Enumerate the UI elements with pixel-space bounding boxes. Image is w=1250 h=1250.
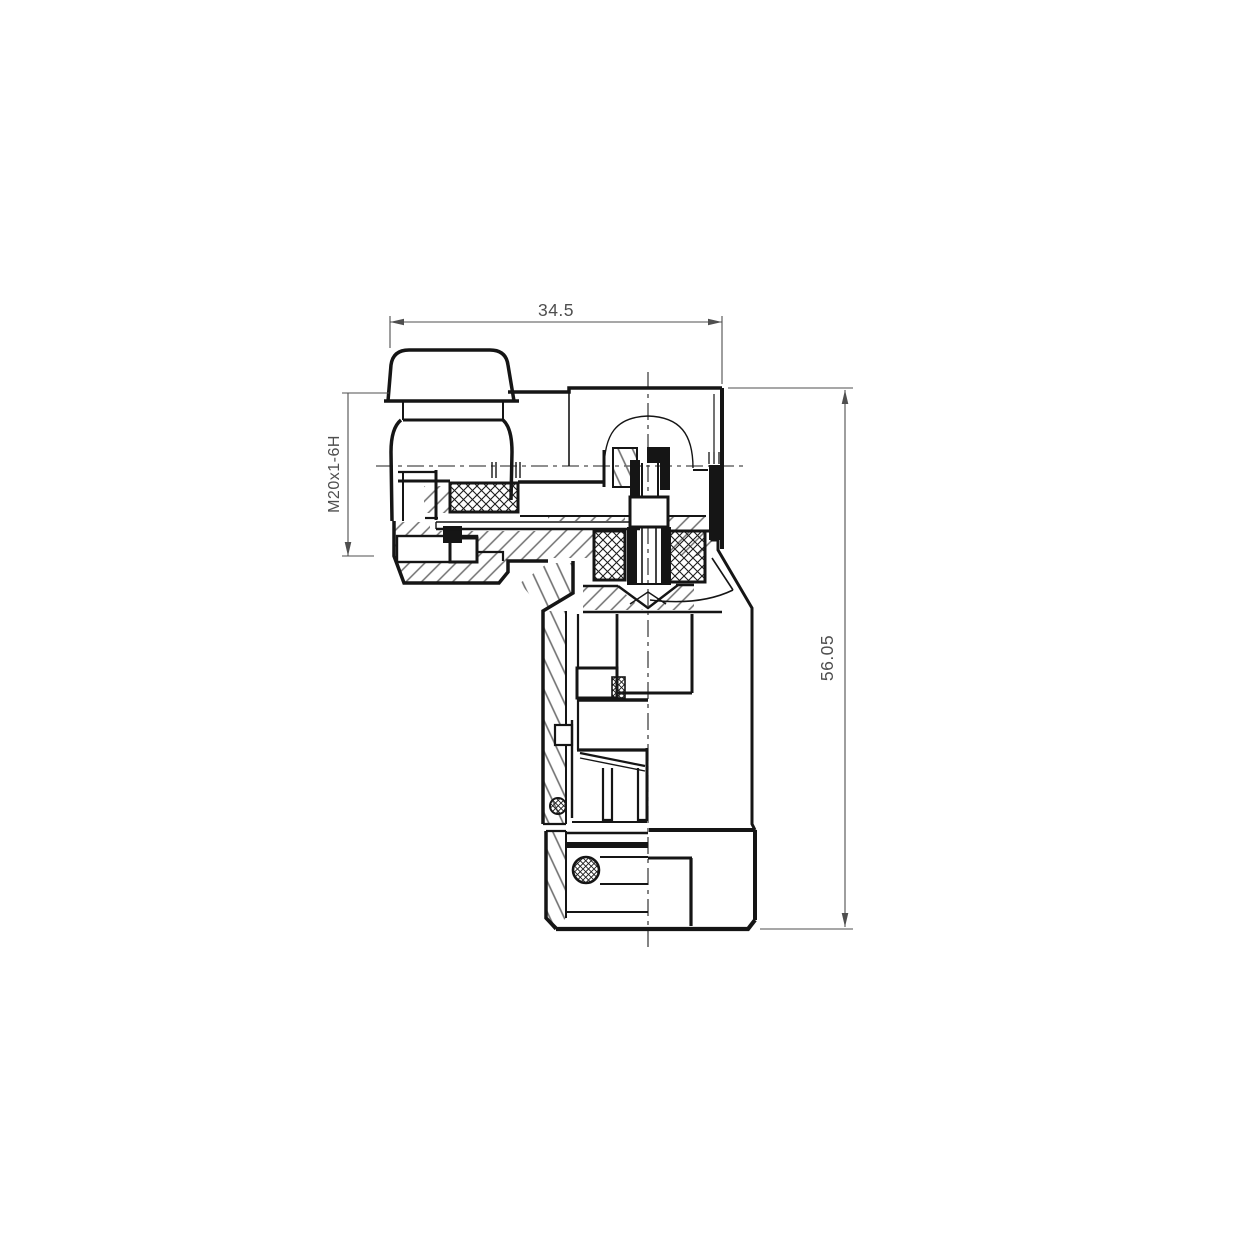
- pin-column-upper-left: [630, 460, 640, 497]
- small-oring: [550, 798, 566, 814]
- main-oring: [573, 857, 599, 883]
- pin-collar: [630, 497, 668, 527]
- thread-spec-label: M20x1-6H: [326, 435, 343, 513]
- pin-column-left: [627, 527, 637, 584]
- spacer-block: [612, 677, 625, 698]
- outer-wall-hatch: [543, 611, 566, 824]
- background: [0, 0, 1250, 1250]
- braid-crimp-bar: [709, 465, 721, 540]
- wall-insert: [555, 725, 572, 745]
- drawing-canvas: 34.5 56.05 M20x1-6H: [0, 0, 1250, 1250]
- lower-wall-hatch: [546, 831, 566, 928]
- technical-drawing: 34.5 56.05 M20x1-6H: [0, 0, 1250, 1250]
- insulator-upper-left: [450, 483, 518, 512]
- hex-section-box: [577, 668, 617, 698]
- dim-width-label: 34.5: [538, 300, 574, 320]
- pin-column-right: [661, 527, 671, 584]
- insulator-center-right: [668, 531, 705, 582]
- insulator-center-left: [594, 531, 625, 580]
- dim-height-label: 56.05: [817, 635, 837, 681]
